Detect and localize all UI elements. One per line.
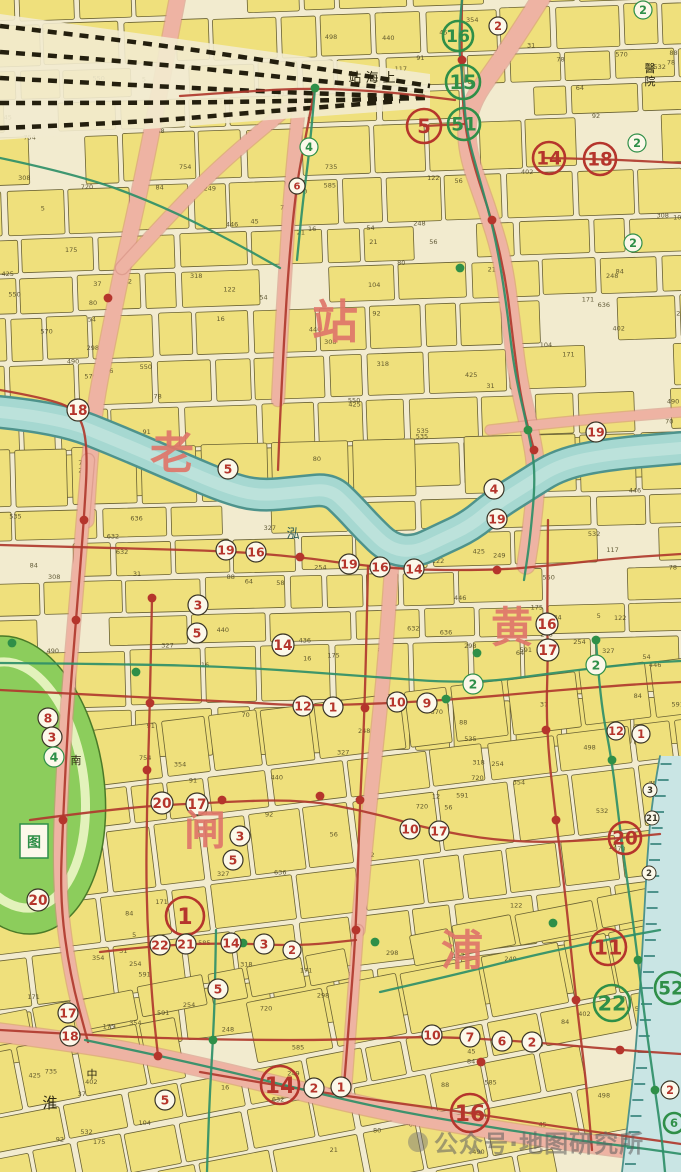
route-marker-number: 5 <box>417 115 431 138</box>
route-marker: 14 <box>272 634 294 656</box>
route-marker-number: 2 <box>592 658 601 673</box>
city-block <box>539 1045 586 1091</box>
lot-number: 440 <box>382 34 394 42</box>
route-marker-number: 14 <box>536 149 562 170</box>
route-marker: 4 <box>44 747 64 767</box>
route-marker: 10 <box>422 1025 442 1045</box>
route-marker: 12 <box>607 722 625 740</box>
route-marker-number: 19 <box>488 512 505 527</box>
city-block <box>460 302 502 346</box>
lot-number: 318 <box>472 758 484 766</box>
city-block <box>180 231 248 267</box>
lot-number: 318 <box>240 961 252 969</box>
route-marker-number: 10 <box>401 822 419 837</box>
lot-number: 735 <box>45 1068 57 1076</box>
lot-number: 175 <box>327 652 339 660</box>
city-block <box>414 443 461 487</box>
green-stop-dot <box>8 639 17 648</box>
lot-number: 88 <box>227 573 235 581</box>
place-label: 南 <box>71 754 82 767</box>
route-marker: 2 <box>304 1078 324 1098</box>
lot-number: 21 <box>676 310 681 318</box>
lot-number: 585 <box>484 1079 496 1087</box>
lot-number: 122 <box>614 614 626 622</box>
lot-number: 440 <box>217 626 229 634</box>
city-block <box>262 402 315 444</box>
lot-number: 720 <box>81 183 93 191</box>
lot-number: 80 <box>89 299 97 307</box>
lot-number: 104 <box>368 281 380 289</box>
lot-number: 64 <box>245 577 253 585</box>
route-marker: 5 <box>187 623 207 643</box>
lot-number: 54 <box>259 294 267 302</box>
route-marker-number: 6 <box>294 182 301 193</box>
lot-number: 248 <box>413 219 425 227</box>
lot-number: 21 <box>369 238 377 246</box>
city-block <box>208 710 262 771</box>
route-marker-number: 2 <box>288 944 296 957</box>
city-block <box>326 973 407 1047</box>
route-marker-number: 14 <box>222 936 240 951</box>
route-marker: 10 <box>387 692 407 712</box>
route-marker-number: 19 <box>217 543 234 558</box>
red-stop-dot <box>458 56 467 65</box>
lot-number: 535 <box>9 512 21 520</box>
lot-number: 45 <box>467 1048 475 1056</box>
lot-number: 16 <box>217 315 225 323</box>
route-marker: 16 <box>536 613 558 635</box>
route-marker-number: 17 <box>538 643 557 659</box>
lot-number: 117 <box>606 546 618 554</box>
route-marker-number: 1 <box>337 1080 346 1095</box>
lot-number: 5 <box>597 612 601 620</box>
lot-number: 550 <box>8 291 20 299</box>
lot-number: 171 <box>582 296 594 304</box>
route-marker-number: 16 <box>537 617 556 633</box>
lot-number: 535 <box>417 427 429 435</box>
lot-number: 591 <box>456 791 468 799</box>
lot-number: 402 <box>578 1010 590 1018</box>
city-block <box>0 958 32 1012</box>
lot-number: 354 <box>129 1019 141 1027</box>
green-stop-dot <box>634 956 643 965</box>
lot-number: 80 <box>313 455 321 463</box>
route-marker: 6 <box>492 1031 512 1051</box>
lot-number: 84 <box>634 692 642 700</box>
city-block <box>46 315 88 359</box>
route-marker: 18 <box>67 399 89 421</box>
lot-number: 84 <box>155 184 163 192</box>
route-marker-number: 22 <box>598 991 627 1015</box>
route-marker: 9 <box>417 693 437 713</box>
district-label: 浦 <box>441 926 483 975</box>
lot-number: 570 <box>615 51 627 59</box>
lot-number: 16 <box>303 654 311 662</box>
city-block <box>506 171 573 218</box>
green-stop-dot <box>209 1036 218 1045</box>
lot-number: 308 <box>48 573 60 581</box>
route-marker: 1 <box>323 697 343 717</box>
city-block <box>0 583 40 617</box>
route-marker-number: 2 <box>633 137 641 150</box>
route-marker-number: 1 <box>637 728 645 741</box>
lot-number: 490 <box>47 647 59 655</box>
lot-number: 5 <box>132 931 136 939</box>
city-block <box>327 228 360 262</box>
lot-number: 298 <box>317 991 329 999</box>
lot-number: 446 <box>226 220 238 228</box>
route-marker-number: 5 <box>161 1093 170 1108</box>
red-stop-dot <box>530 446 539 455</box>
route-marker: 16 <box>246 542 266 562</box>
route-marker: 5 <box>155 1090 175 1110</box>
lot-number: 308 <box>18 174 30 182</box>
route-marker-number: 4 <box>305 141 313 154</box>
lot-number: 354 <box>466 16 478 24</box>
lot-number: 425 <box>1 270 13 278</box>
route-marker: 3 <box>254 934 274 954</box>
city-block <box>556 5 620 48</box>
red-stop-dot <box>148 594 157 603</box>
scanned-map-page: 7352495912488417557063243644042540237543… <box>0 0 681 1172</box>
lot-number: 84 <box>467 1057 475 1065</box>
route-marker-number: 14 <box>273 638 292 654</box>
route-marker-number: 14 <box>405 562 423 577</box>
route-marker: 20 <box>27 889 49 911</box>
route-marker-number: 22 <box>151 938 168 953</box>
route-marker-number: 52 <box>658 979 681 1000</box>
lot-number: 446 <box>454 594 466 602</box>
lot-number: 327 <box>337 749 349 757</box>
route-marker: 17 <box>537 639 559 661</box>
route-marker-number: 14 <box>265 1074 295 1099</box>
lot-number: 327 <box>264 524 276 532</box>
lot-number: 92 <box>592 112 600 120</box>
city-block <box>19 277 73 314</box>
route-marker-number: 2 <box>646 868 652 878</box>
city-block <box>510 52 561 82</box>
city-block <box>386 176 442 222</box>
lot-number: 80 <box>397 259 405 267</box>
route-marker: 15 <box>446 65 480 99</box>
route-marker: 14 <box>221 933 241 953</box>
route-marker: 2 <box>283 941 301 959</box>
lot-number: 58 <box>276 579 284 587</box>
route-marker-number: 1 <box>329 700 338 715</box>
city-block <box>638 168 681 214</box>
lot-number: 490 <box>667 398 679 406</box>
route-marker-number: 12 <box>294 699 311 714</box>
lot-number: 298 <box>464 642 476 650</box>
lot-number: 78 <box>669 564 677 572</box>
route-marker-number: 19 <box>340 557 357 572</box>
route-marker-number: 16 <box>446 27 470 47</box>
city-block <box>578 170 635 216</box>
red-stop-dot <box>361 704 370 713</box>
city-block <box>479 121 522 170</box>
route-marker-number: 20 <box>152 796 171 812</box>
red-stop-dot <box>316 792 325 801</box>
city-block <box>594 218 625 252</box>
green-stop-dot <box>311 84 320 93</box>
route-marker: 22 <box>150 935 170 955</box>
city-block <box>425 303 457 346</box>
city-block <box>596 496 645 526</box>
city-block <box>7 189 65 235</box>
lot-number: 532 <box>588 530 600 538</box>
route-marker-number: 9 <box>423 696 432 711</box>
city-block <box>0 319 7 362</box>
route-marker-number: 20 <box>612 829 638 850</box>
route-marker-number: 7 <box>466 1030 475 1045</box>
green-stop-dot <box>651 1086 660 1095</box>
lot-number: 92 <box>265 810 273 818</box>
city-block <box>365 1041 407 1081</box>
lot-number: 56 <box>444 803 452 811</box>
lot-number: 37 <box>93 280 101 288</box>
lot-number: 535 <box>464 735 476 743</box>
green-stop-dot <box>592 636 601 645</box>
route-marker: 19 <box>586 422 606 442</box>
route-marker: 2 <box>489 17 507 35</box>
lot-number: 636 <box>274 868 286 876</box>
red-stop-dot <box>356 796 365 805</box>
red-stop-dot <box>352 926 361 935</box>
city-block <box>205 646 257 702</box>
lot-number: 354 <box>513 779 525 787</box>
route-marker: 2 <box>624 234 642 252</box>
route-marker-number: 12 <box>608 725 624 738</box>
lot-number: 31 <box>486 382 494 390</box>
route-marker: 19 <box>487 509 507 529</box>
city-block <box>145 272 176 308</box>
red-stop-dot <box>552 816 561 825</box>
city-block <box>330 354 363 396</box>
route-marker-number: 18 <box>587 150 613 171</box>
lot-number: 327 <box>602 647 614 655</box>
lot-number: 532 <box>596 807 608 815</box>
city-block <box>302 802 353 868</box>
route-marker: 20 <box>151 792 173 814</box>
lot-number: 249 <box>493 551 505 559</box>
lot-number: 31 <box>133 570 141 578</box>
lot-number: 254 <box>129 960 141 968</box>
lot-number: 402 <box>521 168 533 176</box>
lot-number: 436 <box>299 636 311 644</box>
place-label: 中 <box>87 1068 98 1081</box>
city-block <box>367 352 424 395</box>
route-marker-number: 18 <box>61 1029 78 1044</box>
lot-number: 78 <box>556 55 564 63</box>
district-label: 站 <box>312 295 358 349</box>
route-marker-number: 6 <box>670 1116 678 1130</box>
route-marker: 10 <box>400 819 420 839</box>
city-block <box>116 541 172 576</box>
lot-number: 16 <box>308 225 316 233</box>
route-marker-number: 21 <box>177 937 194 952</box>
city-block <box>617 296 676 340</box>
city-block <box>519 219 590 255</box>
lot-number: 91 <box>147 722 155 730</box>
city-block <box>185 405 258 447</box>
lot-number: 80 <box>373 1127 381 1135</box>
route-marker-number: 1 <box>177 905 192 930</box>
red-stop-dot <box>218 796 227 805</box>
city-block <box>157 360 211 403</box>
lot-number: 91 <box>189 777 197 785</box>
lot-number: 5 <box>41 204 45 212</box>
green-stop-dot <box>442 695 451 704</box>
city-block <box>109 616 187 646</box>
city-block <box>571 768 641 836</box>
lot-number: 16 <box>221 1083 229 1091</box>
lot-number: 440 <box>271 773 283 781</box>
lot-number: 636 <box>598 301 610 309</box>
lot-number: 720 <box>416 802 428 810</box>
route-marker: 5 <box>218 459 238 479</box>
red-stop-dot <box>296 553 305 562</box>
lot-number: 636 <box>440 629 452 637</box>
lot-number: 122 <box>510 901 522 909</box>
route-marker-number: 3 <box>260 937 269 952</box>
city-block <box>210 875 296 929</box>
route-marker: 3 <box>230 826 250 846</box>
route-marker-number: 16 <box>455 1102 485 1127</box>
route-marker-number: 5 <box>229 853 238 868</box>
green-stop-dot <box>524 426 533 435</box>
lot-number: 498 <box>325 33 337 41</box>
lot-number: 254 <box>183 1001 195 1009</box>
lot-number: 248 <box>222 1025 234 1033</box>
green-stop-dot <box>456 264 465 273</box>
lot-number: 104 <box>540 341 552 349</box>
city-block <box>171 506 223 536</box>
city-block <box>423 855 464 903</box>
place-label: 站 海 上 <box>348 71 395 86</box>
lot-number: 56 <box>330 831 338 839</box>
lot-number: 490 <box>472 1148 484 1156</box>
route-marker: 16 <box>370 557 390 577</box>
city-block <box>661 112 681 162</box>
route-marker-number: 2 <box>639 4 647 17</box>
lot-number: 64 <box>576 84 584 92</box>
route-marker: 1 <box>331 1077 351 1097</box>
lot-number: 70 <box>241 711 249 719</box>
route-marker-number: 2 <box>310 1081 319 1096</box>
lot-number: 175 <box>93 1138 105 1146</box>
city-block <box>254 356 325 400</box>
lot-number: 45 <box>251 217 259 225</box>
city-block <box>68 187 131 234</box>
lot-number: 54 <box>642 653 650 661</box>
lot-number: 254 <box>573 638 585 646</box>
route-marker-number: 17 <box>430 824 447 839</box>
route-marker-number: 2 <box>494 20 502 33</box>
lot-number: 92 <box>372 310 380 318</box>
city-block <box>11 318 43 361</box>
place-label: 淮 <box>42 1094 57 1112</box>
lot-number: 54 <box>88 316 96 324</box>
lot-number: 298 <box>386 949 398 957</box>
route-marker: 12 <box>293 696 313 716</box>
route-marker: 1 <box>632 725 650 743</box>
city-block <box>246 0 299 13</box>
lot-number: 84 <box>30 562 38 570</box>
lot-number: 78 <box>667 58 675 66</box>
place-label: 泓 <box>286 527 299 542</box>
route-marker: 8 <box>38 708 58 728</box>
lot-number: 171 <box>562 350 574 358</box>
city-block <box>629 602 681 632</box>
lot-number: 550 <box>348 397 360 405</box>
lot-number: 754 <box>179 163 191 171</box>
lot-number: 735 <box>325 163 337 171</box>
route-marker-number: 2 <box>666 1084 674 1097</box>
route-marker: 17 <box>58 1003 78 1023</box>
route-marker: 19 <box>216 540 236 560</box>
lot-number: 327 <box>217 870 229 878</box>
lot-number: 425 <box>29 1071 41 1079</box>
lot-number: 318 <box>190 272 202 280</box>
city-block <box>281 16 317 58</box>
route-marker-number: 2 <box>528 1035 537 1050</box>
route-marker-number: 6 <box>498 1034 507 1049</box>
route-marker: 19 <box>339 554 359 574</box>
lot-number: 254 <box>491 760 503 768</box>
route-marker-number: 16 <box>247 545 265 560</box>
lot-number: 12 <box>432 792 440 800</box>
red-stop-dot <box>616 1046 625 1055</box>
lot-number: 31 <box>527 41 535 49</box>
route-marker: 2 <box>642 866 656 880</box>
city-block <box>506 843 561 893</box>
city-block <box>303 0 334 10</box>
route-marker: 14 <box>404 559 424 579</box>
lot-number: 248 <box>606 272 618 280</box>
lot-number: 550 <box>140 363 152 371</box>
city-block <box>534 86 567 115</box>
lot-number: 104 <box>673 214 681 222</box>
lot-number: 88 <box>459 718 467 726</box>
route-marker-number: 5 <box>224 462 233 477</box>
route-marker-number: 3 <box>236 829 245 844</box>
lot-number: 78 <box>153 392 161 400</box>
route-marker: 2 <box>463 674 483 694</box>
lot-number: 354 <box>92 954 104 962</box>
city-block <box>79 0 132 19</box>
lot-number: 532 <box>80 1128 92 1136</box>
lot-number: 446 <box>629 487 641 495</box>
route-marker: 6 <box>289 178 305 194</box>
route-marker: 2 <box>522 1032 542 1052</box>
lot-number: 122 <box>427 174 439 182</box>
route-marker-number: 51 <box>451 115 477 136</box>
route-marker-number: 10 <box>388 695 406 710</box>
route-marker: 18 <box>60 1026 80 1046</box>
lot-number: 84 <box>125 909 133 917</box>
city-block <box>353 439 417 497</box>
lot-number: 318 <box>377 360 389 368</box>
district-label: 黄 <box>491 603 533 652</box>
lot-number: 92 <box>56 1136 64 1144</box>
lot-number: 327 <box>161 642 173 650</box>
place-label: 醫院 <box>645 62 656 88</box>
route-marker-number: 5 <box>214 982 223 997</box>
lot-number: 425 <box>473 547 485 555</box>
route-marker: 21 <box>176 934 196 954</box>
lot-number: 21 <box>330 1146 338 1154</box>
route-marker-number: 8 <box>44 711 53 726</box>
